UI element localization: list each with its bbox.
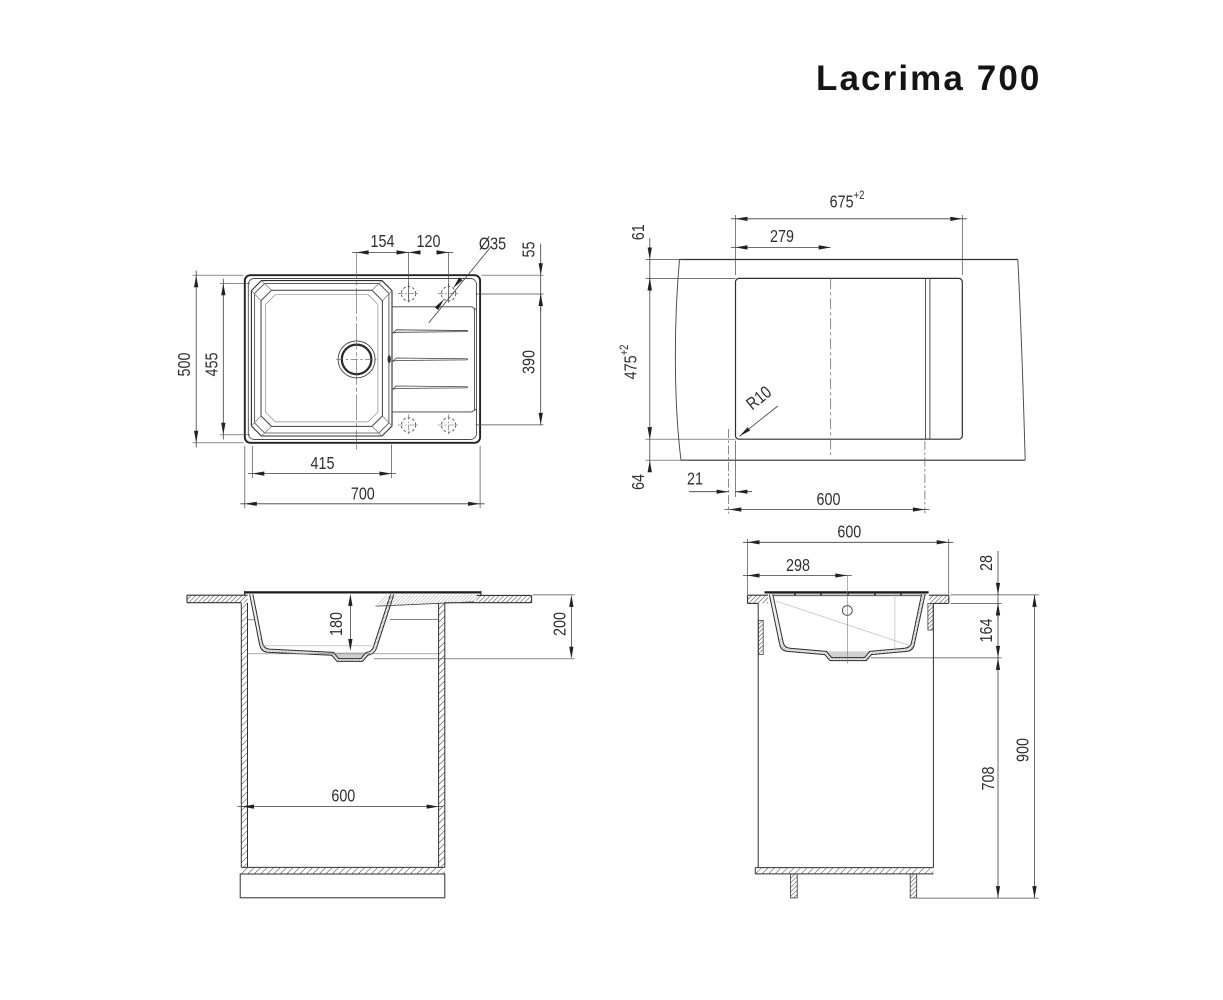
svg-text:55: 55 xyxy=(520,241,539,257)
svg-text:475+2: 475+2 xyxy=(618,345,641,380)
svg-text:455: 455 xyxy=(203,352,222,376)
svg-text:180: 180 xyxy=(328,612,347,636)
svg-text:700: 700 xyxy=(351,485,375,504)
svg-text:390: 390 xyxy=(520,350,539,374)
svg-text:164: 164 xyxy=(978,618,997,642)
svg-text:600: 600 xyxy=(331,787,355,806)
svg-text:708: 708 xyxy=(980,766,999,790)
svg-text:R10: R10 xyxy=(743,383,775,414)
svg-text:200: 200 xyxy=(551,612,570,636)
svg-text:Ø35: Ø35 xyxy=(479,235,506,254)
svg-text:61: 61 xyxy=(630,224,649,240)
svg-text:298: 298 xyxy=(786,557,810,576)
svg-text:675+2: 675+2 xyxy=(830,189,865,212)
svg-text:120: 120 xyxy=(417,233,441,252)
svg-text:600: 600 xyxy=(817,491,841,510)
svg-text:279: 279 xyxy=(770,228,794,247)
svg-text:154: 154 xyxy=(371,233,395,252)
svg-text:28: 28 xyxy=(978,555,997,571)
svg-text:500: 500 xyxy=(176,352,195,376)
svg-text:64: 64 xyxy=(630,474,649,490)
svg-text:900: 900 xyxy=(1014,738,1033,762)
svg-text:415: 415 xyxy=(311,455,335,474)
svg-text:600: 600 xyxy=(837,523,861,542)
svg-text:21: 21 xyxy=(687,470,703,489)
